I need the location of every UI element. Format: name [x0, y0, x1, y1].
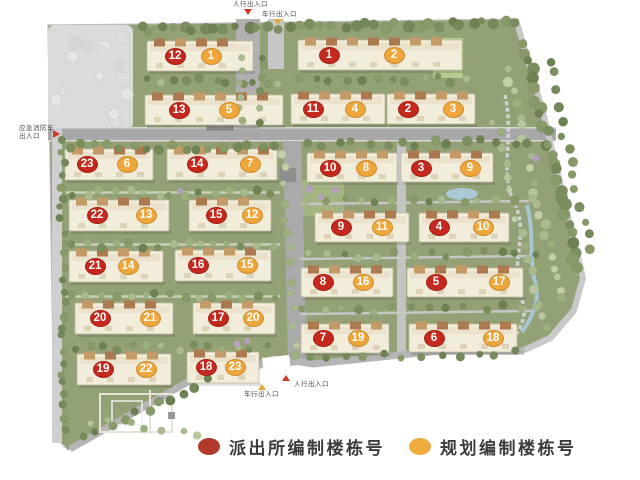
planning-number-badge-10: 10: [473, 219, 494, 236]
police-number-badge-2: 2: [398, 101, 419, 118]
planning-number-badge-16: 16: [353, 274, 374, 291]
legend-planning-label: 规划编制楼栋号: [440, 434, 577, 459]
building-17: [193, 301, 277, 338]
building-19: [77, 352, 173, 389]
planning-number-badge-8: 8: [356, 160, 377, 177]
police-number-badge-16: 16: [188, 257, 209, 274]
police-number-badge-4: 4: [429, 219, 450, 236]
entrance-label-top-pedestrian: 人行出入口: [233, 1, 268, 9]
planning-number-badge-6: 6: [117, 156, 138, 173]
building-21: [69, 249, 165, 286]
entrance-arrow-bottom-pedestrian-icon: [282, 375, 290, 381]
planning-number-badge-2: 2: [384, 47, 405, 64]
police-number-badge-5: 5: [426, 274, 447, 291]
planning-number-badge-23: 23: [225, 359, 246, 376]
planning-number-badge-21: 21: [140, 310, 161, 327]
pond: [446, 188, 478, 200]
planning-number-badge-17: 17: [489, 274, 510, 291]
planning-number-badge-20: 20: [243, 310, 264, 327]
police-number-badge-6: 6: [424, 330, 445, 347]
legend-police-dot-icon: [198, 438, 220, 455]
police-number-badge-20: 20: [90, 310, 111, 327]
police-number-badge-18: 18: [196, 359, 217, 376]
police-number-badge-1: 1: [319, 47, 340, 64]
police-number-badge-17: 17: [208, 310, 229, 327]
police-number-badge-3: 3: [411, 160, 432, 177]
planning-number-badge-11: 11: [372, 219, 393, 236]
police-number-badge-22: 22: [87, 207, 108, 224]
police-number-badge-19: 19: [93, 361, 114, 378]
entrance-arrow-bottom-vehicle-icon: [258, 384, 266, 390]
entrance-label-left-emergency-line1: 应急消防车: [19, 125, 54, 132]
entrance-label-left-emergency-line2: 出入口: [19, 133, 40, 140]
legend-planning-dot-icon: [409, 438, 431, 455]
building-13: [145, 93, 285, 129]
planning-number-badge-14: 14: [118, 258, 139, 275]
legend-police-label: 派出所编制楼栋号: [229, 434, 385, 459]
police-number-badge-10: 10: [320, 160, 341, 177]
planning-number-badge-5: 5: [219, 102, 240, 119]
planning-number-badge-18: 18: [483, 330, 504, 347]
planning-number-badge-9: 9: [460, 160, 481, 177]
planning-number-badge-22: 22: [136, 361, 157, 378]
police-number-badge-21: 21: [85, 258, 106, 275]
planning-number-badge-15: 15: [237, 257, 258, 274]
police-number-badge-15: 15: [206, 207, 227, 224]
road-edge: [48, 127, 556, 129]
police-number-badge-13: 13: [169, 102, 190, 119]
entrance-label-bottom-vehicle: 车行出入口: [244, 391, 279, 399]
planning-number-badge-3: 3: [443, 101, 464, 118]
entrance-label-left-emergency: 应急消防车 出入口: [19, 125, 54, 140]
planning-number-badge-4: 4: [345, 101, 366, 118]
entrance-arrow-top-pedestrian-icon: [244, 9, 252, 15]
site-plan: 1211213511423236147108392213151291141021…: [0, 0, 640, 480]
police-number-badge-23: 23: [77, 156, 98, 173]
entrance-label-bottom-pedestrian: 人行出入口: [294, 381, 329, 389]
entrance-arrow-left-emergency-icon: [53, 130, 60, 138]
site-map-svg: [0, 0, 640, 480]
police-number-badge-11: 11: [303, 101, 324, 118]
planning-number-badge-19: 19: [348, 330, 369, 347]
police-number-badge-9: 9: [331, 219, 352, 236]
planning-number-badge-7: 7: [240, 156, 261, 173]
police-number-badge-14: 14: [187, 156, 208, 173]
legend: 派出所编制楼栋号 规划编制楼栋号: [198, 434, 577, 459]
police-number-badge-7: 7: [313, 330, 334, 347]
entrance-arrow-top-vehicle-icon: [274, 19, 282, 25]
police-number-badge-12: 12: [165, 48, 186, 65]
entrance-label-top-vehicle: 车行出入口: [262, 11, 297, 19]
building-9: [315, 211, 411, 246]
police-number-badge-8: 8: [313, 274, 334, 291]
planning-number-badge-13: 13: [136, 207, 157, 224]
planning-number-badge-12: 12: [242, 207, 263, 224]
planning-number-badge-1: 1: [201, 48, 222, 65]
